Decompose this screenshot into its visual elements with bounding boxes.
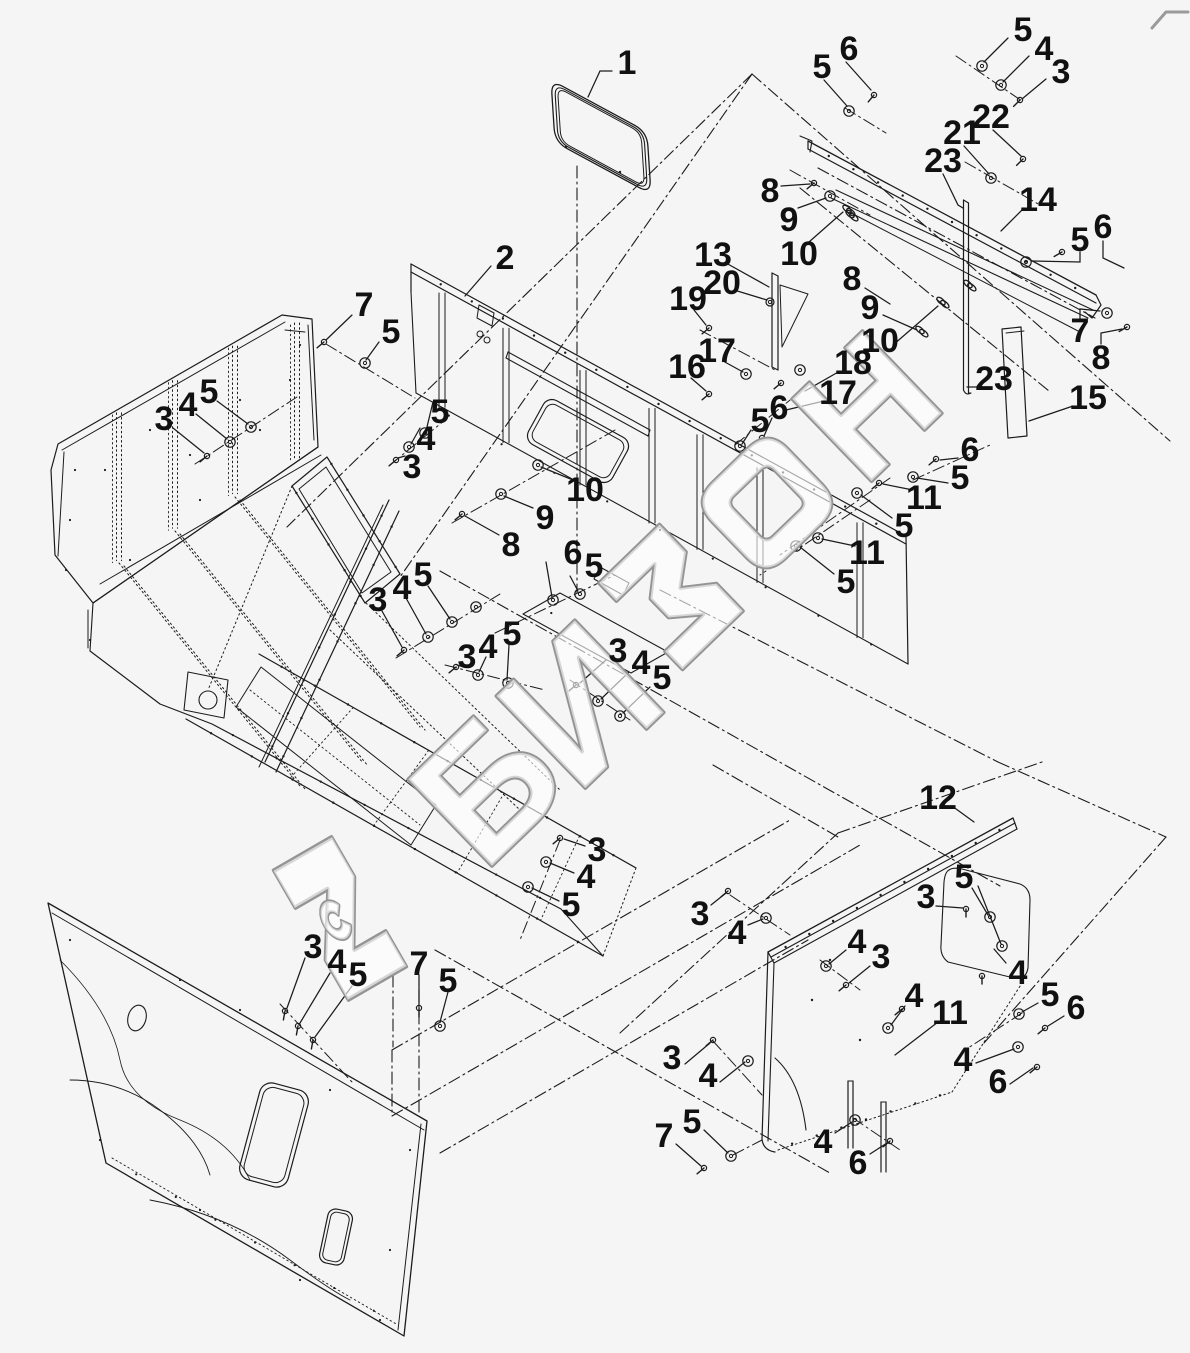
svg-text:23: 23 [975,360,1013,398]
svg-text:15: 15 [1069,379,1107,417]
svg-text:4: 4 [905,977,924,1015]
svg-text:5: 5 [813,48,832,86]
svg-text:10: 10 [566,471,604,509]
svg-text:7: 7 [410,945,429,983]
svg-text:4: 4 [479,628,498,666]
svg-text:5: 5 [955,858,974,896]
svg-text:6: 6 [989,1063,1008,1101]
svg-text:5: 5 [200,373,219,411]
svg-text:4: 4 [814,1123,833,1161]
svg-text:5: 5 [895,507,914,545]
svg-text:9: 9 [780,201,799,239]
svg-text:17: 17 [819,374,857,412]
svg-text:3: 3 [609,632,628,670]
svg-text:4: 4 [328,943,347,981]
svg-text:4: 4 [728,914,747,952]
svg-text:6: 6 [1094,208,1113,246]
svg-text:5: 5 [585,547,604,585]
svg-text:3: 3 [155,400,174,438]
svg-text:7: 7 [655,1117,674,1155]
svg-text:5: 5 [951,459,970,497]
svg-text:5: 5 [837,563,856,601]
svg-text:4: 4 [179,386,198,424]
svg-text:5: 5 [1071,221,1090,259]
svg-text:4: 4 [954,1041,973,1079]
svg-text:9: 9 [536,499,555,537]
svg-text:8: 8 [502,526,521,564]
svg-text:5: 5 [653,659,672,697]
svg-text:5: 5 [1014,11,1033,49]
svg-text:11: 11 [932,994,968,1032]
svg-text:8: 8 [761,172,780,210]
svg-text:10: 10 [780,235,818,273]
svg-text:3: 3 [1052,53,1071,91]
svg-text:6: 6 [849,1144,868,1182]
svg-text:5: 5 [562,886,581,924]
svg-text:6: 6 [770,389,789,427]
svg-text:3: 3 [304,928,323,966]
svg-text:23: 23 [924,142,962,180]
svg-text:7: 7 [1071,312,1090,350]
svg-text:6: 6 [840,30,859,68]
svg-text:4: 4 [393,569,412,607]
svg-text:5: 5 [503,615,522,653]
svg-text:4: 4 [1009,954,1028,992]
svg-text:3: 3 [691,895,710,933]
svg-text:12: 12 [919,779,957,817]
svg-text:5: 5 [751,402,770,440]
svg-text:5: 5 [382,313,401,351]
svg-text:5: 5 [439,962,458,1000]
svg-text:6: 6 [564,534,583,572]
svg-text:14: 14 [1019,181,1057,219]
svg-text:20: 20 [703,264,741,302]
svg-text:19: 19 [669,280,707,318]
svg-text:5: 5 [683,1103,702,1141]
svg-text:7: 7 [355,286,374,324]
svg-text:3: 3 [458,638,477,676]
svg-text:3: 3 [663,1039,682,1077]
svg-text:16: 16 [668,348,706,386]
svg-text:5: 5 [414,556,433,594]
svg-text:3: 3 [369,581,388,619]
svg-text:4: 4 [699,1057,718,1095]
svg-text:8: 8 [843,260,862,298]
svg-text:3: 3 [917,878,936,916]
svg-text:3: 3 [872,938,891,976]
svg-text:4: 4 [632,644,651,682]
svg-text:5: 5 [1041,976,1060,1014]
svg-text:4: 4 [848,923,867,961]
svg-text:3: 3 [403,448,422,486]
svg-text:5: 5 [349,956,368,994]
svg-text:2: 2 [496,239,515,277]
svg-text:1: 1 [618,44,637,82]
svg-text:6: 6 [1067,989,1086,1027]
svg-text:8: 8 [1092,339,1111,377]
